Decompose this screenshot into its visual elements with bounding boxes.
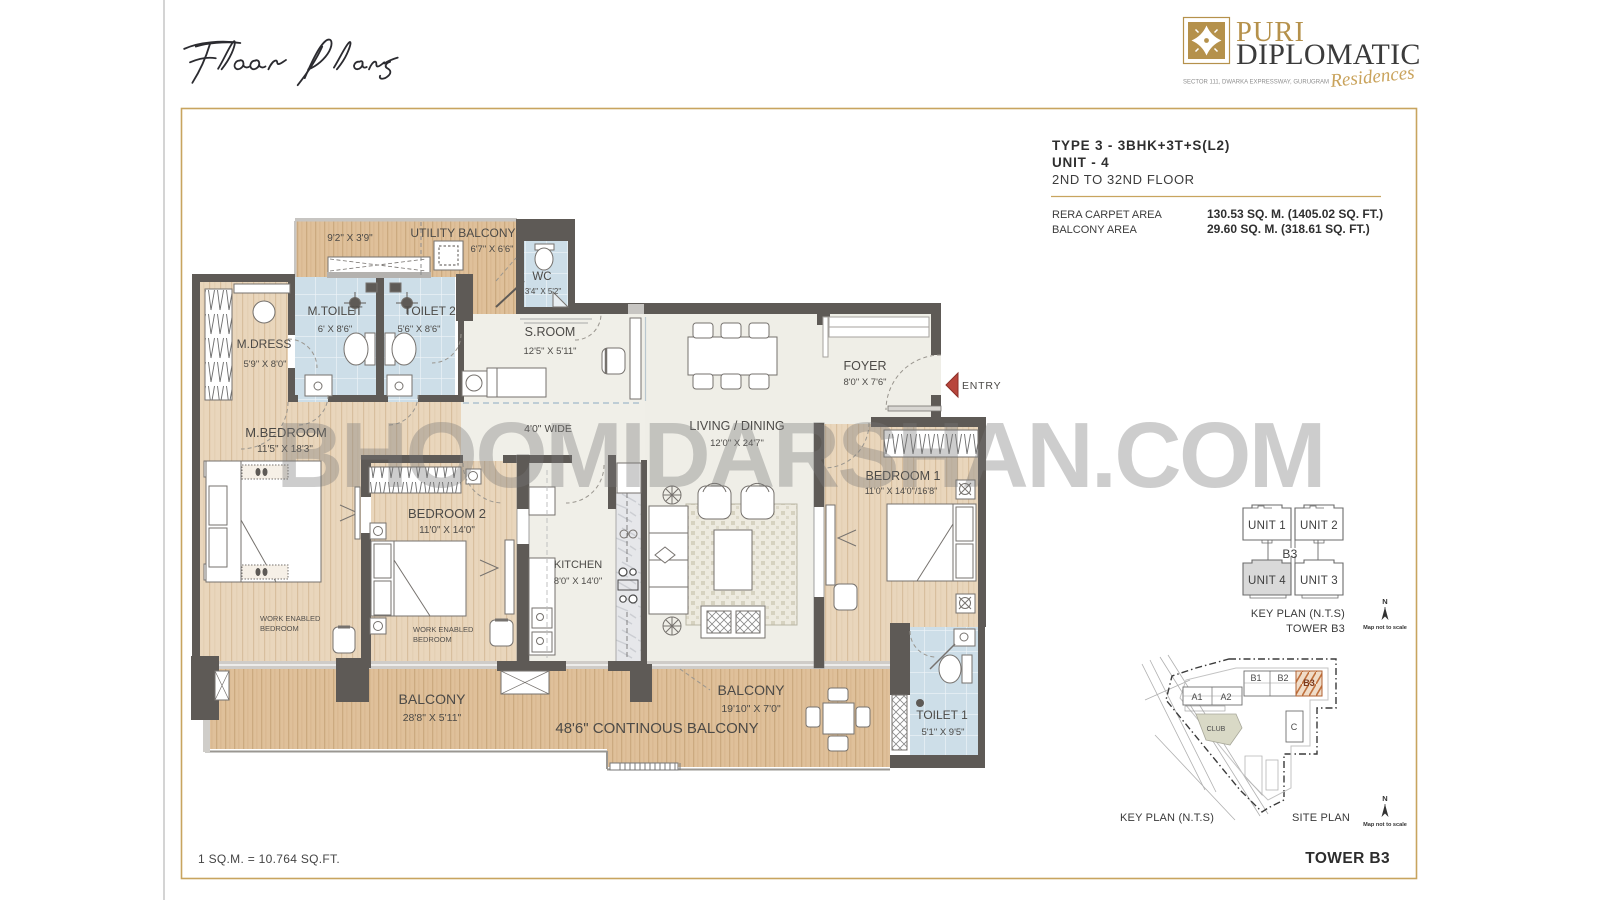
svg-text:A1: A1 — [1191, 692, 1202, 702]
svg-text:5'6" X 8'6": 5'6" X 8'6" — [397, 324, 440, 335]
svg-text:KEY PLAN (N.T.S): KEY PLAN (N.T.S) — [1251, 608, 1345, 620]
svg-text:BEDROOM: BEDROOM — [260, 624, 299, 633]
svg-text:6' X 8'6": 6' X 8'6" — [318, 324, 352, 335]
svg-text:C: C — [1291, 722, 1298, 732]
svg-text:B1: B1 — [1250, 673, 1261, 683]
svg-text:Map not to scale: Map not to scale — [1363, 822, 1407, 828]
svg-text:KEY PLAN (N.T.S): KEY PLAN (N.T.S) — [1120, 812, 1214, 824]
svg-text:UNIT 1: UNIT 1 — [1248, 520, 1286, 532]
svg-text:UNIT 3: UNIT 3 — [1300, 575, 1338, 587]
svg-text:UNIT - 4: UNIT - 4 — [1052, 155, 1109, 170]
svg-text:WORK ENABLED: WORK ENABLED — [413, 625, 474, 634]
svg-text:N: N — [1382, 794, 1387, 803]
svg-text:TOILET 1: TOILET 1 — [916, 708, 968, 722]
svg-text:1 SQ.M. = 10.764 SQ.FT.: 1 SQ.M. = 10.764 SQ.FT. — [198, 852, 340, 866]
svg-text:CLUB: CLUB — [1207, 726, 1226, 733]
svg-text:BALCONY AREA: BALCONY AREA — [1052, 224, 1137, 236]
svg-text:TYPE 3 - 3BHK+3T+S(L2): TYPE 3 - 3BHK+3T+S(L2) — [1052, 138, 1230, 153]
svg-text:TOILET 2: TOILET 2 — [404, 304, 456, 318]
svg-text:BEDROOM: BEDROOM — [413, 635, 452, 644]
svg-text:11'0" X 14'0": 11'0" X 14'0" — [419, 525, 475, 536]
svg-text:BHOOMIDARSHAN.COM: BHOOMIDARSHAN.COM — [276, 403, 1324, 507]
svg-text:N: N — [1382, 597, 1387, 606]
svg-text:9'2" X 3'9": 9'2" X 3'9" — [327, 233, 373, 244]
svg-text:B2: B2 — [1277, 673, 1288, 683]
svg-text:BALCONY: BALCONY — [399, 691, 467, 707]
svg-text:UNIT 4: UNIT 4 — [1248, 575, 1286, 587]
svg-text:KITCHEN: KITCHEN — [554, 559, 602, 571]
svg-text:B3: B3 — [1303, 678, 1315, 688]
svg-text:A2: A2 — [1220, 692, 1231, 702]
svg-text:29.60 SQ. M. (318.61 SQ. FT.): 29.60 SQ. M. (318.61 SQ. FT.) — [1207, 222, 1370, 236]
svg-text:FOYER: FOYER — [843, 359, 886, 373]
svg-text:UTILITY BALCONY: UTILITY BALCONY — [410, 226, 515, 240]
svg-text:12'5" X 5'11": 12'5" X 5'11" — [524, 346, 577, 357]
svg-text:SECTOR 111, DWARKA EXPRESSWAY,: SECTOR 111, DWARKA EXPRESSWAY, GURUGRAM — [1183, 80, 1329, 86]
svg-text:S.ROOM: S.ROOM — [525, 325, 576, 339]
svg-text:WORK ENABLED: WORK ENABLED — [260, 614, 321, 623]
svg-text:5'9" X 8'0": 5'9" X 8'0" — [243, 359, 286, 370]
svg-text:Map not to scale: Map not to scale — [1363, 625, 1407, 631]
svg-text:BALCONY: BALCONY — [718, 682, 786, 698]
svg-text:TOWER B3: TOWER B3 — [1305, 850, 1390, 867]
svg-text:8'0" X 14'0": 8'0" X 14'0" — [554, 576, 602, 587]
svg-text:RERA CARPET AREA: RERA CARPET AREA — [1052, 209, 1162, 221]
svg-text:WC: WC — [532, 271, 551, 283]
svg-text:2ND TO 32ND FLOOR: 2ND TO 32ND FLOOR — [1052, 172, 1195, 187]
svg-text:28'8" X 5'11": 28'8" X 5'11" — [403, 712, 462, 724]
svg-text:BEDROOM 2: BEDROOM 2 — [408, 506, 486, 521]
svg-text:TOWER B3: TOWER B3 — [1286, 623, 1345, 635]
svg-text:SITE PLAN: SITE PLAN — [1292, 812, 1350, 824]
svg-text:19'10" X 7'0": 19'10" X 7'0" — [721, 703, 781, 715]
svg-text:130.53 SQ. M. (1405.02 SQ. FT.: 130.53 SQ. M. (1405.02 SQ. FT.) — [1207, 207, 1383, 221]
svg-text:B3: B3 — [1282, 547, 1297, 561]
svg-text:6'7" X 6'6": 6'7" X 6'6" — [470, 244, 513, 255]
svg-text:M.DRESS: M.DRESS — [237, 337, 292, 351]
svg-text:5'1" X 9'5": 5'1" X 9'5" — [921, 727, 964, 738]
svg-text:8'0" X 7'6": 8'0" X 7'6" — [843, 377, 886, 388]
svg-text:M.TOILET: M.TOILET — [307, 304, 363, 318]
svg-text:UNIT 2: UNIT 2 — [1300, 520, 1338, 532]
svg-text:3'4" X 5'2": 3'4" X 5'2" — [525, 287, 561, 296]
svg-text:48'6" CONTINOUS BALCONY: 48'6" CONTINOUS BALCONY — [555, 720, 758, 737]
svg-text:ENTRY: ENTRY — [962, 380, 1001, 392]
